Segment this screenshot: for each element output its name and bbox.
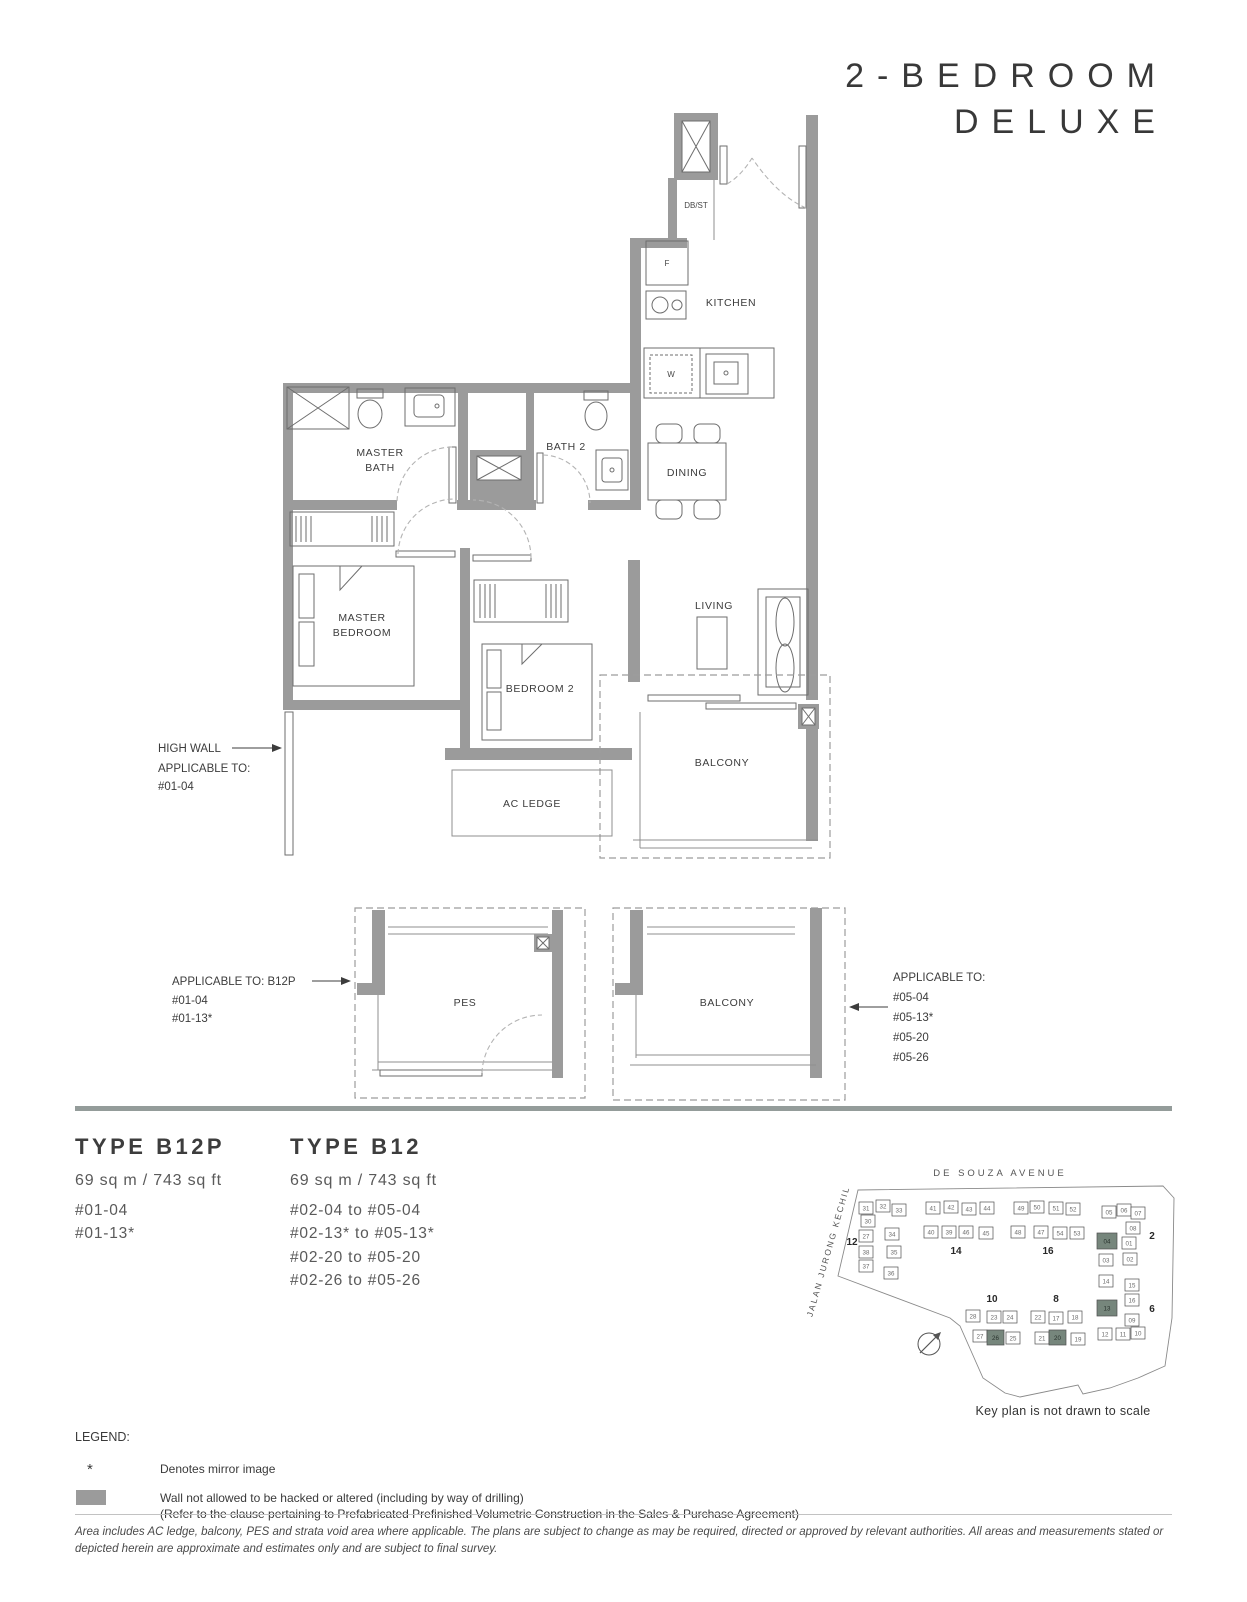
dbst-label: DB/ST (684, 201, 708, 210)
type-b12-unit: #02-26 to #05-26 (290, 1269, 437, 1292)
legend-row-mirror: * Denotes mirror image (75, 1461, 799, 1479)
keyplan-unit-label: 08 (1130, 1225, 1137, 1232)
keyplan-unit-label: 22 (1035, 1314, 1042, 1321)
keyplan-unit-label: 42 (948, 1204, 955, 1211)
washer-label: W (667, 370, 675, 379)
balcony-note-line3: #05-20 (893, 1032, 929, 1044)
type-b12-units: #02-04 to #05-04 #02-13* to #05-13* #02-… (290, 1199, 437, 1292)
room-label-kitchen: KITCHEN (706, 297, 756, 309)
keyplan-unit-label: 23 (991, 1314, 998, 1321)
keyplan-unit-label: 05 (1106, 1209, 1113, 1216)
keyplan-unit-label: 53 (1074, 1230, 1081, 1237)
room-label-master-bedroom-1: MASTER (338, 612, 385, 624)
floor-plan: F W DB/ST KITCHEN MASTER BATH (140, 95, 990, 1110)
type-b12-unit: #02-20 to #05-20 (290, 1246, 437, 1269)
keyplan-unit-label: 13 (1104, 1305, 1111, 1312)
keyplan-unit-label: 46 (963, 1229, 970, 1236)
room-label-master-bath-1: MASTER (356, 447, 403, 459)
keyplan-unit-label: 20 (1054, 1335, 1061, 1342)
key-plan: DE SOUZA AVENUE JALAN JURONG KECHIL 1231… (795, 1138, 1185, 1423)
keyplan-unit-label: 52 (1070, 1206, 1077, 1213)
keyplan-unit-label: 44 (984, 1205, 991, 1212)
keyplan-unit-label: 30 (865, 1218, 872, 1225)
room-label-master-bedroom-2: BEDROOM (333, 627, 391, 639)
keyplan-unit-label: 06 (1121, 1207, 1128, 1214)
page-title-line1: 2-BEDROOM (845, 54, 1168, 100)
balcony-shaft-icon (802, 708, 815, 725)
type-b12p-unit: #01-13* (75, 1222, 225, 1245)
high-wall-line2: #01-04 (158, 781, 194, 793)
type-b12p-name: TYPE B12P (75, 1134, 225, 1160)
balcony-option-annotation: APPLICABLE TO: #05-04 #05-13* #05-20 #05… (849, 972, 985, 1064)
balcony-note-title: APPLICABLE TO: (893, 972, 985, 984)
legend-mirror-text: Denotes mirror image (160, 1461, 275, 1477)
keyplan-unit-label: 37 (863, 1263, 870, 1270)
keyplan-unit-label: 47 (1038, 1229, 1045, 1236)
room-label-bedroom2: BEDROOM 2 (506, 683, 574, 695)
keyplan-unit-label: 51 (1053, 1205, 1060, 1212)
high-wall-outline (285, 712, 293, 855)
keyplan-unit-label: 38 (863, 1249, 870, 1256)
keyplan-unit-label: 15 (1129, 1282, 1136, 1289)
walls (283, 113, 819, 841)
high-wall-title: HIGH WALL (158, 743, 221, 755)
keyplan-unit-label: 09 (1129, 1317, 1136, 1324)
keyplan-note: Key plan is not drawn to scale (975, 1404, 1150, 1418)
keyplan-unit-label: 17 (1053, 1315, 1060, 1322)
keyplan-unit-label: 16 (1129, 1297, 1136, 1304)
keyplan-unit-label: 10 (1135, 1330, 1142, 1337)
keyplan-unit-label: 45 (983, 1230, 990, 1237)
keyplan-unit-label: 31 (863, 1205, 870, 1212)
keyplan-block-label: 16 (1042, 1246, 1054, 1257)
site-boundary (838, 1186, 1174, 1397)
keyplan-unit-label: 01 (1126, 1240, 1133, 1247)
type-b12p-unit: #01-04 (75, 1199, 225, 1222)
keyplan-unit-label: 14 (1103, 1278, 1110, 1285)
room-label-bath2: BATH 2 (546, 441, 586, 453)
keyplan-unit-label: 41 (930, 1205, 937, 1212)
pes-annotation: APPLICABLE TO: B12P #01-04 #01-13* (172, 976, 351, 1025)
lift-shaft-icon (682, 121, 710, 172)
high-wall-annotation: HIGH WALL APPLICABLE TO: #01-04 (158, 743, 282, 793)
pes-note-line2: #01-13* (172, 1013, 213, 1025)
type-b12-area: 69 sq m / 743 sq ft (290, 1172, 437, 1190)
pes-note-line1: #01-04 (172, 995, 208, 1007)
keyplan-unit-label: 02 (1127, 1256, 1134, 1263)
room-label-pes: PES (454, 997, 477, 1009)
keyplan-unit-label: 27 (863, 1233, 870, 1240)
master-bath-fixtures (287, 387, 456, 503)
keyplan-unit-label: 27 (977, 1333, 984, 1340)
keyplan-unit-label: 07 (1135, 1210, 1142, 1217)
room-label-living: LIVING (695, 600, 733, 612)
keyplan-unit-label: 43 (966, 1206, 973, 1213)
keyplan-unit-label: 50 (1034, 1204, 1041, 1211)
keyplan-unit-label: 39 (946, 1229, 953, 1236)
keyplan-block-label: 6 (1149, 1304, 1155, 1315)
section-divider (75, 1106, 1172, 1111)
keyplan-unit-label: 21 (1039, 1335, 1046, 1342)
road-label-left: JALAN JURONG KECHIL (805, 1185, 852, 1318)
road-label-top: DE SOUZA AVENUE (933, 1168, 1067, 1179)
keyplan-unit-label: 28 (970, 1313, 977, 1320)
room-label-balcony: BALCONY (695, 757, 749, 769)
room-label-ac-ledge: AC LEDGE (503, 798, 561, 810)
room-label-dining: DINING (667, 467, 707, 479)
keyplan-unit-label: 03 (1103, 1257, 1110, 1264)
keyplan-unit-label: 19 (1075, 1336, 1082, 1343)
balcony-note-line4: #05-26 (893, 1052, 929, 1064)
balcony-option-plan: BALCONY (613, 908, 845, 1100)
keyplan-unit-label: 04 (1104, 1238, 1111, 1245)
keyplan-block-label: 10 (986, 1294, 998, 1305)
service-shaft-icon (477, 456, 521, 480)
floorplan-page: 2-BEDROOM DELUXE (0, 0, 1247, 1602)
keyplan-units: 1231323330273438353736144142434440394645… (846, 1200, 1155, 1345)
keyplan-unit-label: 48 (1015, 1229, 1022, 1236)
keyplan-unit-label: 35 (891, 1249, 898, 1256)
disclaimer-text: Area includes AC ledge, balcony, PES and… (75, 1524, 1175, 1559)
keyplan-unit-label: 49 (1018, 1205, 1025, 1212)
type-b12-name: TYPE B12 (290, 1134, 437, 1160)
fridge-label: F (665, 259, 670, 268)
legend: LEGEND: * Denotes mirror image Wall not … (75, 1430, 799, 1533)
keyplan-unit-label: 32 (880, 1203, 887, 1210)
keyplan-block-label: 2 (1149, 1231, 1155, 1242)
bedroom2-furniture (474, 580, 592, 740)
type-b12-block: TYPE B12 69 sq m / 743 sq ft #02-04 to #… (290, 1134, 437, 1292)
north-arrow-icon (918, 1332, 941, 1355)
keyplan-unit-label: 40 (928, 1229, 935, 1236)
type-b12-unit: #02-13* to #05-13* (290, 1222, 437, 1245)
master-bedroom-furniture (290, 512, 414, 686)
keyplan-unit-label: 36 (888, 1270, 895, 1277)
mirror-asterisk: * (75, 1461, 93, 1478)
room-label-master-bath-2: BATH (365, 462, 395, 474)
keyplan-block-label: 8 (1053, 1294, 1059, 1305)
keyplan-unit-label: 26 (992, 1335, 999, 1342)
keyplan-block-label: 12 (846, 1237, 858, 1248)
legend-title: LEGEND: (75, 1430, 799, 1444)
balcony-note-line2: #05-13* (893, 1012, 934, 1024)
keyplan-unit-label: 24 (1007, 1314, 1014, 1321)
bottom-rule (75, 1514, 1172, 1515)
balcony-note-line1: #05-04 (893, 992, 929, 1004)
keyplan-unit-label: 33 (896, 1207, 903, 1214)
keyplan-unit-label: 34 (889, 1231, 896, 1238)
type-b12p-area: 69 sq m / 743 sq ft (75, 1172, 225, 1190)
entry-door-icon (714, 146, 806, 240)
type-b12p-block: TYPE B12P 69 sq m / 743 sq ft #01-04 #01… (75, 1134, 225, 1246)
high-wall-line1: APPLICABLE TO: (158, 763, 250, 775)
room-label-balcony-option: BALCONY (700, 997, 754, 1009)
legend-row-wall: Wall not allowed to be hacked or altered… (75, 1490, 799, 1522)
keyplan-block-label: 14 (950, 1246, 962, 1257)
keyplan-unit-label: 54 (1057, 1230, 1064, 1237)
keyplan-unit-label: 25 (1010, 1335, 1017, 1342)
type-b12p-units: #01-04 #01-13* (75, 1199, 225, 1246)
keyplan-unit-label: 12 (1102, 1331, 1109, 1338)
kitchen-fixtures (644, 241, 774, 398)
keyplan-unit-label: 11 (1120, 1331, 1127, 1338)
legend-wall-text1: Wall not allowed to be hacked or altered… (160, 1490, 799, 1506)
keyplan-unit-label: 18 (1072, 1314, 1079, 1321)
pes-option-plan: PES (355, 908, 585, 1098)
pes-note-title: APPLICABLE TO: B12P (172, 976, 296, 988)
wall-swatch (76, 1490, 106, 1505)
type-b12-unit: #02-04 to #05-04 (290, 1199, 437, 1222)
